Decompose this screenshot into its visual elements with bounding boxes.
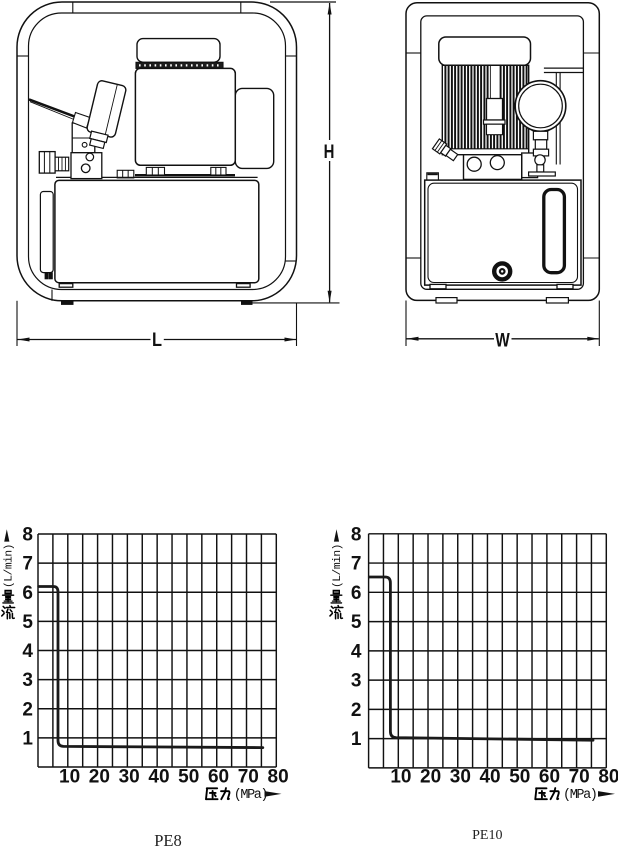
svg-text:5: 5	[351, 612, 362, 633]
svg-text:PE10: PE10	[472, 828, 502, 843]
svg-text:2: 2	[22, 699, 33, 720]
svg-text:8: 8	[351, 524, 362, 545]
svg-text:PE8: PE8	[154, 831, 182, 849]
svg-text:1: 1	[22, 728, 33, 749]
svg-text:20: 20	[420, 767, 441, 788]
svg-text:10: 10	[390, 767, 411, 788]
svg-text:(L/min): (L/min)	[4, 544, 16, 588]
svg-text:2: 2	[351, 700, 362, 721]
svg-text:(MPa): (MPa)	[563, 788, 597, 803]
svg-text:10: 10	[59, 767, 80, 788]
svg-text:L: L	[152, 330, 162, 351]
svg-text:3: 3	[351, 671, 362, 692]
svg-text:80: 80	[268, 767, 289, 788]
svg-text:50: 50	[178, 767, 199, 788]
svg-text:(L/min): (L/min)	[332, 544, 344, 588]
svg-text:20: 20	[89, 767, 110, 788]
svg-text:30: 30	[450, 767, 471, 788]
svg-text:70: 70	[238, 767, 259, 788]
svg-text:4: 4	[22, 641, 33, 662]
svg-text:70: 70	[569, 767, 590, 788]
svg-text:40: 40	[148, 767, 169, 788]
svg-text:60: 60	[208, 767, 229, 788]
svg-text:7: 7	[351, 554, 362, 575]
svg-text:(MPa): (MPa)	[234, 788, 268, 803]
svg-text:60: 60	[539, 767, 560, 788]
svg-text:6: 6	[22, 583, 33, 604]
svg-text:H: H	[324, 142, 335, 163]
svg-text:8: 8	[22, 525, 33, 546]
svg-text:40: 40	[479, 767, 500, 788]
svg-text:4: 4	[351, 641, 362, 662]
svg-text:6: 6	[351, 583, 362, 604]
svg-text:W: W	[495, 331, 510, 352]
svg-text:50: 50	[509, 767, 530, 788]
svg-text:80: 80	[598, 767, 618, 788]
svg-text:30: 30	[119, 767, 140, 788]
svg-text:7: 7	[22, 554, 33, 575]
svg-text:3: 3	[22, 670, 33, 691]
svg-text:1: 1	[351, 729, 362, 750]
svg-text:5: 5	[22, 612, 33, 633]
